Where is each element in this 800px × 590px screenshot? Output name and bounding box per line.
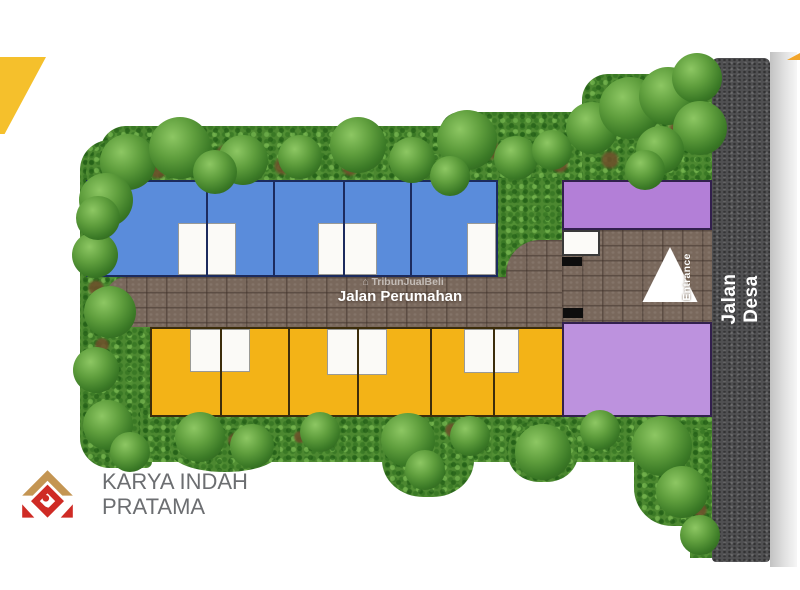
road-label-jalan-perumahan: Jalan Perumahan [312,288,488,305]
logo-name-line2: PRATAMA [102,495,205,519]
road-label-jalan-desa: Jalan Desa [719,270,763,329]
gate-marker [562,257,582,266]
tree [230,424,274,468]
watermark-text: TribunJualBeli [371,276,443,288]
entrance-label: Entrance [681,253,693,300]
tree [430,156,470,196]
tree [73,347,119,393]
company-logo: KARYA INDAH PRATAMA [20,466,260,536]
logo-emblem [20,468,75,521]
tree [580,410,620,450]
tree [193,150,237,194]
tree [532,130,572,170]
guard-post-building [562,230,600,256]
tree [330,117,386,173]
gate-marker [563,308,583,318]
tree [389,137,435,183]
watermark-house-icon: ⌂ [362,276,368,288]
tree [300,412,340,452]
tree [278,135,322,179]
watermark: ⌂ TribunJualBeli [338,276,468,288]
tree [625,150,665,190]
tree [515,424,571,480]
logo-name-line1: KARYA INDAH [102,470,248,494]
tree [656,466,708,518]
tree [450,416,490,456]
tree [175,412,225,462]
site-plan-image: B5 B4 B3 B2 B1 C6 C5 C4 C3 C2 C1 Ruko A3… [0,0,800,590]
tree [84,286,136,338]
tree [494,136,538,180]
tree [680,515,720,555]
tree [672,53,722,103]
tree [76,196,120,240]
tree [405,450,445,490]
